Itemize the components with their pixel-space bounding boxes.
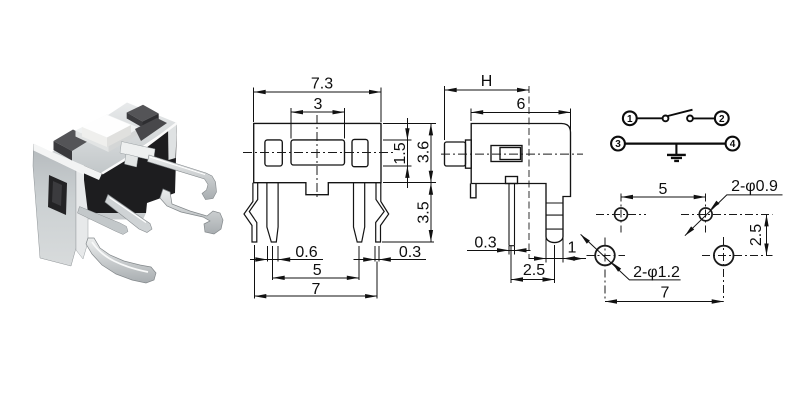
svg-text:2-φ1.2: 2-φ1.2 — [633, 264, 680, 281]
svg-text:5: 5 — [313, 262, 322, 279]
svg-text:3: 3 — [314, 96, 323, 113]
svg-text:5: 5 — [659, 181, 668, 198]
svg-text:0.3: 0.3 — [399, 244, 421, 261]
svg-text:H: H — [481, 73, 493, 90]
svg-text:3.5: 3.5 — [416, 201, 433, 223]
svg-text:2.5: 2.5 — [523, 262, 545, 279]
svg-text:3.6: 3.6 — [416, 141, 433, 163]
svg-text:2.5: 2.5 — [748, 224, 765, 246]
svg-text:7.3: 7.3 — [311, 76, 333, 93]
svg-text:1: 1 — [627, 114, 633, 125]
svg-text:6: 6 — [517, 96, 526, 113]
svg-text:3: 3 — [615, 139, 621, 150]
svg-text:2-φ0.9: 2-φ0.9 — [731, 178, 778, 195]
svg-text:0.6: 0.6 — [295, 244, 317, 261]
svg-text:7: 7 — [312, 281, 321, 298]
svg-text:7: 7 — [661, 285, 670, 302]
svg-text:1.5: 1.5 — [392, 142, 409, 164]
svg-text:4: 4 — [730, 139, 736, 150]
svg-text:2: 2 — [719, 114, 725, 125]
svg-text:0.3: 0.3 — [474, 235, 496, 252]
svg-text:1: 1 — [568, 240, 577, 257]
